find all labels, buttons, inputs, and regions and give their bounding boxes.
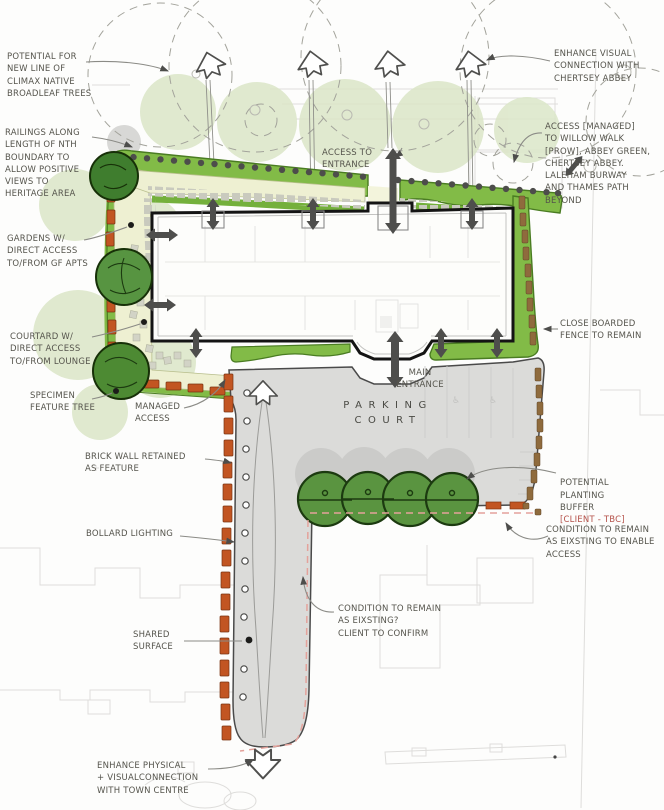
annotation-enhance-physical: ENHANCE PHYSICAL + VISUALCONNECTION WITH… [97, 760, 198, 797]
disabled-bay-icon: ♿ [452, 396, 460, 406]
disabled-bay-icon: ♿ [489, 396, 497, 406]
site-plan: ♿ ♿ [0, 0, 664, 810]
annotation-enhance-visual: ENHANCE VISUAL CONNECTION WITH CHERTSEY … [554, 48, 640, 85]
annotation-parking-court: PARKING COURT [323, 398, 453, 428]
annotation-planting-buffer-lines: POTENTIAL PLANTING BUFFER [560, 478, 609, 513]
annotation-close-boarded: CLOSE BOARDED FENCE TO REMAIN [560, 318, 642, 343]
annotation-gardens: GARDENS W/ DIRECT ACCESS TO/FROM GF APTS [7, 233, 88, 270]
annotation-bollard-lighting: BOLLARD LIGHTING [86, 528, 173, 540]
annotation-shared-surface: SHARED SURFACE [133, 629, 173, 654]
building [152, 203, 513, 359]
annotation-condition-confirm: CONDITION TO REMAIN AS EIXSTING? CLIENT … [338, 603, 441, 640]
annotation-courtyard: COURTARD W/ DIRECT ACCESS TO/FROM LOUNGE [10, 331, 91, 368]
annotation-managed-access: MANAGED ACCESS [135, 401, 180, 426]
annotation-potential-trees: POTENTIAL FOR NEW LINE OF CLIMAX NATIVE … [7, 51, 91, 100]
annotation-access-to-entrance: ACCESS TO ENTRANCE [322, 147, 372, 172]
annotation-access-managed: ACCESS [MANAGED] TO WILLOW WALK [PROW], … [545, 121, 650, 207]
annotation-main-entrance: MAIN ENTRANCE [385, 367, 455, 392]
annotation-condition-access: CONDITION TO REMAIN AS EIXSTING TO ENABL… [546, 524, 655, 561]
annotation-brick-wall: BRICK WALL RETAINED AS FEATURE [85, 451, 186, 476]
annotation-specimen-tree: SPECIMEN FEATURE TREE [30, 390, 95, 415]
annotation-railings: RAILINGS ALONG LENGTH OF NTH BOUNDARY TO… [5, 127, 80, 201]
